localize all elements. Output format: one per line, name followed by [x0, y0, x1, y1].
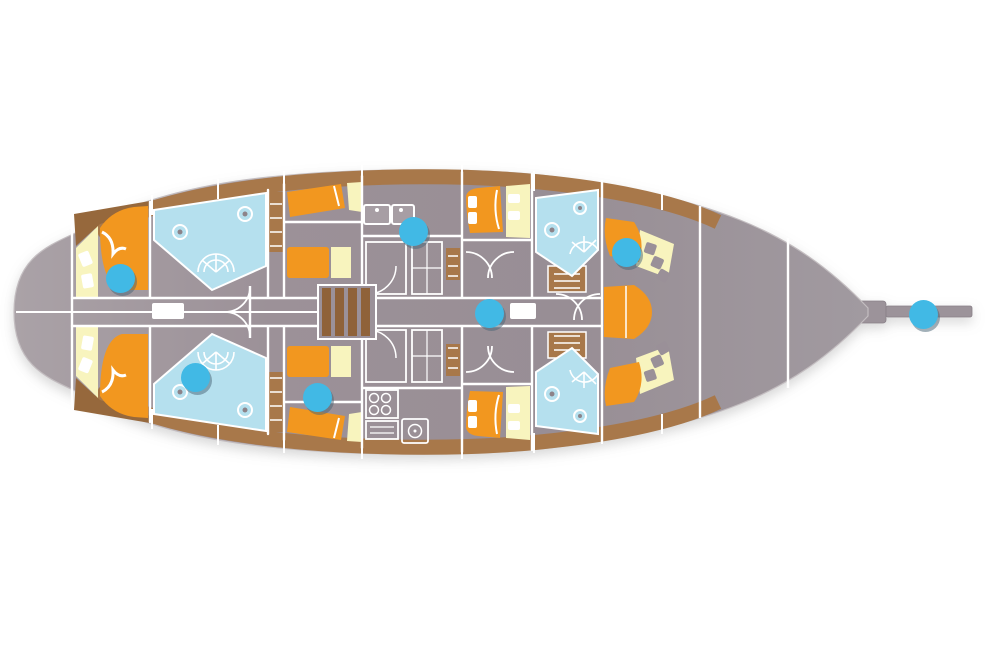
hotspot-marker[interactable] — [303, 383, 332, 412]
hotspot-marker[interactable] — [909, 300, 938, 329]
hotspot-marker[interactable] — [612, 238, 641, 267]
hotspot-marker[interactable] — [106, 264, 135, 293]
hotspot-marker[interactable] — [181, 363, 210, 392]
hotspot-marker[interactable] — [399, 217, 428, 246]
hotspot-marker[interactable] — [475, 299, 504, 328]
deck-plan-canvas — [0, 0, 1000, 668]
hotspot-layer — [0, 0, 1000, 668]
